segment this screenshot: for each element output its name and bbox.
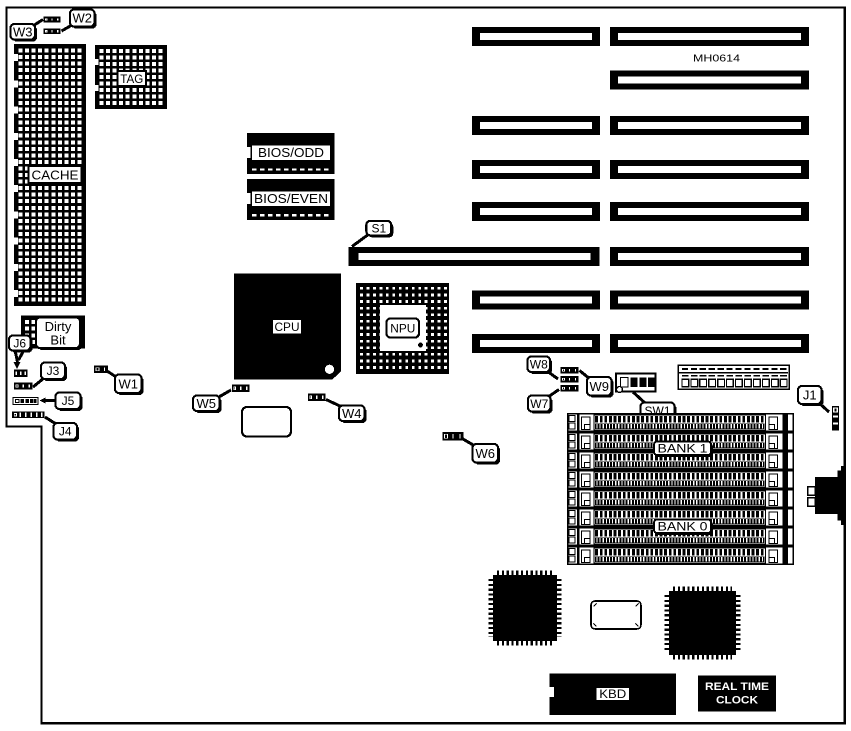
svg-text:MH0614: MH0614 bbox=[693, 53, 740, 65]
svg-text:CPU: CPU bbox=[275, 320, 300, 334]
svg-text:J1: J1 bbox=[803, 388, 817, 403]
svg-text:REAL TIME: REAL TIME bbox=[705, 681, 769, 693]
svg-text:CACHE: CACHE bbox=[32, 167, 79, 182]
svg-text:BANK 0: BANK 0 bbox=[658, 520, 708, 534]
svg-text:BIOS/EVEN: BIOS/EVEN bbox=[254, 192, 328, 206]
svg-text:J4: J4 bbox=[59, 425, 72, 439]
svg-text:W8: W8 bbox=[530, 358, 548, 372]
svg-text:KBD: KBD bbox=[599, 687, 626, 701]
svg-text:W1: W1 bbox=[119, 376, 139, 391]
svg-text:W7: W7 bbox=[530, 397, 548, 411]
svg-text:J6: J6 bbox=[13, 336, 26, 350]
svg-text:J5: J5 bbox=[62, 394, 75, 408]
svg-text:W9: W9 bbox=[590, 379, 610, 394]
svg-text:W6: W6 bbox=[476, 446, 496, 461]
svg-text:CLOCK: CLOCK bbox=[716, 695, 758, 707]
svg-text:BANK 1: BANK 1 bbox=[658, 442, 708, 456]
svg-text:Bit: Bit bbox=[50, 333, 66, 348]
svg-text:W3: W3 bbox=[13, 24, 33, 39]
svg-text:W4: W4 bbox=[342, 406, 362, 421]
svg-text:BIOS/ODD: BIOS/ODD bbox=[258, 146, 324, 160]
svg-text:S1: S1 bbox=[371, 221, 386, 235]
svg-text:J3: J3 bbox=[47, 364, 60, 378]
svg-text:NPU: NPU bbox=[390, 324, 415, 336]
svg-text:W2: W2 bbox=[73, 11, 93, 26]
svg-text:W5: W5 bbox=[197, 396, 217, 411]
svg-text:TAG: TAG bbox=[120, 72, 143, 86]
